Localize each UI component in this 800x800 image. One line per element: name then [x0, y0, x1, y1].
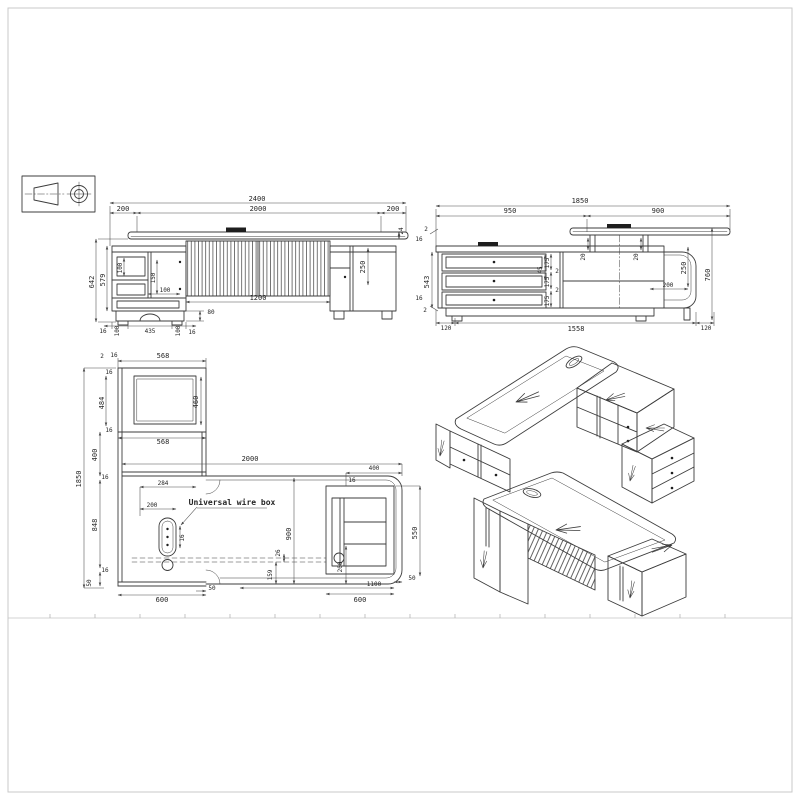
dim-plan-square-width-bottom: 568: [157, 438, 170, 446]
grain-direction-arrow: [626, 465, 638, 482]
dim-front-plinth-height: 80: [207, 309, 215, 316]
dim-plan-front-inset: 159: [267, 569, 274, 580]
dim-side-gap-1: 2: [555, 268, 559, 275]
dim-front-foot-left: 100: [114, 325, 121, 336]
grain-direction-arrow: [652, 543, 673, 553]
dim-plan-square-width-top: 568: [157, 352, 170, 360]
dim-front-foot-inset-left: 16: [99, 328, 107, 335]
dim-side-return-width: 900: [652, 207, 665, 215]
dim-front-height-body: 579: [99, 274, 107, 287]
dim-plan-pedestal-inner: 200: [337, 561, 344, 572]
grain-direction-arrow: [556, 523, 581, 534]
dim-plan-top-seg-16: 16: [348, 477, 356, 484]
dim-front-top-thickness: 24: [398, 227, 405, 235]
dim-plan-return-length: 1850: [75, 471, 83, 488]
plan-view-linework: [118, 368, 402, 586]
dim-side-drawer-2: 175: [544, 276, 551, 287]
grain-direction-arrow: [478, 551, 489, 569]
dim-plan-seg-16-b: 16: [101, 567, 109, 574]
dim-front-foot-inset-right: 16: [188, 329, 196, 336]
dim-side-riser-height: 250: [680, 262, 688, 275]
grommet-oval: [522, 487, 541, 499]
dim-plan-square-inner: 460: [192, 396, 200, 409]
wire-box-label: Universal wire box: [189, 497, 276, 507]
fold-ticks: [50, 614, 725, 618]
dim-side-body-height: 543: [423, 276, 431, 289]
dim-plan-wire-box-offset: 284: [158, 480, 169, 487]
dim-side-total-height: 760: [704, 269, 712, 282]
dim-side-base-span: 1558: [568, 325, 585, 333]
dim-plan-right-gap: 50: [408, 575, 416, 582]
grain-direction-arrow: [625, 581, 637, 599]
dim-plan-top-seg-400: 400: [369, 465, 380, 472]
dim-side-top-panel: 16: [415, 236, 423, 243]
first-angle-projection-symbol-icon: [22, 176, 95, 212]
dim-plan-desk-length: 2000: [242, 455, 259, 463]
dim-side-drawer-1: 175: [544, 257, 551, 268]
dim-side-left-width: 950: [504, 207, 517, 215]
dim-front-overhang-left: 200: [117, 205, 130, 213]
dim-plan-seg-16-a: 16: [101, 474, 109, 481]
dim-side-total-width: 1850: [572, 197, 589, 205]
dim-plan-side-overhang: 50: [208, 585, 216, 592]
dim-front-mid-panel: 150: [150, 272, 157, 283]
dim-front-panel-width: 1200: [250, 294, 267, 302]
dim-side-divider: 45: [537, 266, 544, 274]
dim-side-drawer-3: 175: [544, 295, 551, 306]
plan-view: 2 16 568 460 16 484 16 568 1850 400 16 8…: [75, 352, 420, 604]
grain-direction-arrow: [515, 391, 540, 404]
grain-direction-arrow: [436, 440, 447, 457]
dim-plan-pedestal-span: 1100: [367, 581, 382, 588]
dim-plan-wire-box-span: 200: [147, 502, 158, 509]
front-elevation-view: 2400 200 2000 200 24 642 579 100 150 100…: [88, 195, 408, 336]
dim-front-body-width: 2000: [250, 205, 267, 213]
dim-side-post-left: 20: [580, 253, 587, 261]
dim-plan-seg-400: 400: [91, 449, 99, 462]
dim-side-shelf-depth: 200: [663, 282, 674, 289]
dim-front-foot-right: 100: [175, 325, 182, 336]
dim-side-base-right: 120: [701, 325, 712, 332]
dim-plan-inner-depth: 484: [98, 397, 106, 410]
isometric-view-back: [436, 347, 694, 503]
dim-plan-wall-16: 16: [110, 352, 118, 359]
slatted-front-panel: [528, 524, 595, 590]
dim-side-bottom-panel: 16: [415, 295, 423, 302]
dim-front-door-height: 250: [359, 261, 367, 274]
dim-plan-desk-depth: 900: [285, 528, 293, 541]
dim-plan-wire-box-side: 16: [179, 534, 186, 542]
dim-plan-gap-2: 2: [100, 353, 104, 360]
side-elevation-labels: 1850 950 900 2 16 543 16 2 175 2 175 2 1…: [415, 197, 712, 333]
dim-side-post-right: 20: [633, 253, 640, 261]
dim-side-gap-2: 2: [555, 287, 559, 294]
dim-side-top-gap: 2: [424, 226, 428, 233]
grain-direction-arrow: [605, 392, 625, 401]
dim-plan-seg-50: 50: [86, 579, 93, 587]
dim-plan-seg-848: 848: [91, 519, 99, 532]
dim-side-bottom-gap: 2: [423, 307, 427, 314]
side-elevation-view: 1850 950 900 2 16 543 16 2 175 2 175 2 1…: [415, 197, 730, 333]
dim-plan-pedestal-depth: 550: [411, 527, 419, 540]
dim-front-drawer-height: 100: [117, 262, 124, 273]
dim-plan-side-16-bottom: 16: [105, 427, 113, 434]
dim-front-total-width: 2400: [249, 195, 266, 203]
dim-front-foot-span: 435: [145, 328, 156, 335]
isometric-view-front: [474, 472, 686, 616]
dim-side-base-left: 120: [441, 325, 452, 332]
dim-plan-panel-offset: 26: [275, 549, 282, 557]
drawing-sheet: 2400 200 2000 200 24 642 579 100 150 100…: [0, 0, 800, 800]
dim-front-shelf-width: 100: [160, 287, 171, 294]
dim-plan-pedestal-width: 600: [354, 596, 367, 604]
dim-plan-return-width: 600: [156, 596, 169, 604]
dim-front-overhang-right: 200: [387, 205, 400, 213]
dim-plan-side-16-top: 16: [105, 369, 113, 376]
dim-front-height-total: 642: [88, 276, 96, 289]
